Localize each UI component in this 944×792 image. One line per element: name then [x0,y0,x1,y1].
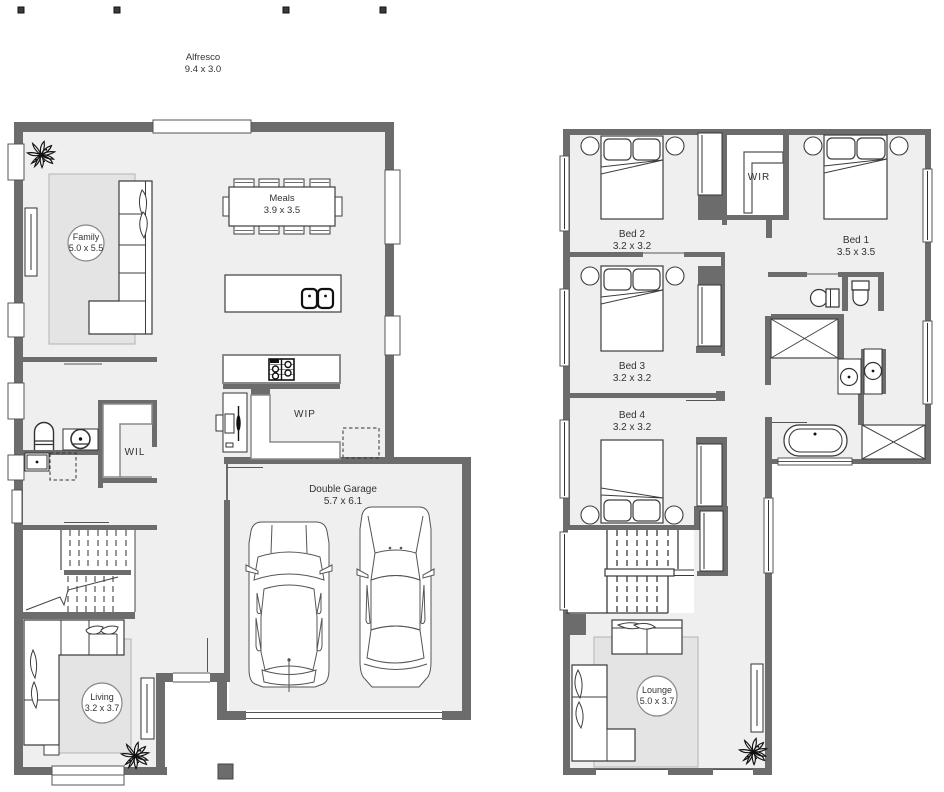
svg-text:Meals: Meals [269,193,295,204]
svg-text:Double Garage: Double Garage [309,484,377,495]
svg-text:3.2 x 3.7: 3.2 x 3.7 [85,703,120,713]
svg-text:3.2 x 3.2: 3.2 x 3.2 [613,373,652,384]
svg-text:Bed 1: Bed 1 [843,235,870,246]
svg-text:WIL: WIL [125,447,146,458]
svg-text:3.2 x 3.2: 3.2 x 3.2 [613,241,652,252]
svg-text:5.0 x 3.7: 5.0 x 3.7 [640,696,675,706]
svg-text:5.0 x 5.5: 5.0 x 5.5 [69,243,104,253]
svg-text:Family: Family [73,232,100,242]
svg-text:Lounge: Lounge [642,685,672,695]
svg-text:Living: Living [90,692,114,702]
svg-text:5.7 x 6.1: 5.7 x 6.1 [324,496,363,507]
svg-text:Bed 4: Bed 4 [619,410,646,421]
svg-text:WIP: WIP [294,409,316,420]
svg-text:Bed 2: Bed 2 [619,229,646,240]
svg-text:3.2 x 3.2: 3.2 x 3.2 [613,422,652,433]
svg-text:WIR: WIR [748,172,770,183]
svg-text:3.9 x 3.5: 3.9 x 3.5 [264,205,300,216]
svg-text:3.5 x 3.5: 3.5 x 3.5 [837,247,876,258]
svg-text:9.4 x 3.0: 9.4 x 3.0 [185,64,221,75]
svg-text:Bed 3: Bed 3 [619,361,646,372]
svg-text:Alfresco: Alfresco [186,52,220,63]
